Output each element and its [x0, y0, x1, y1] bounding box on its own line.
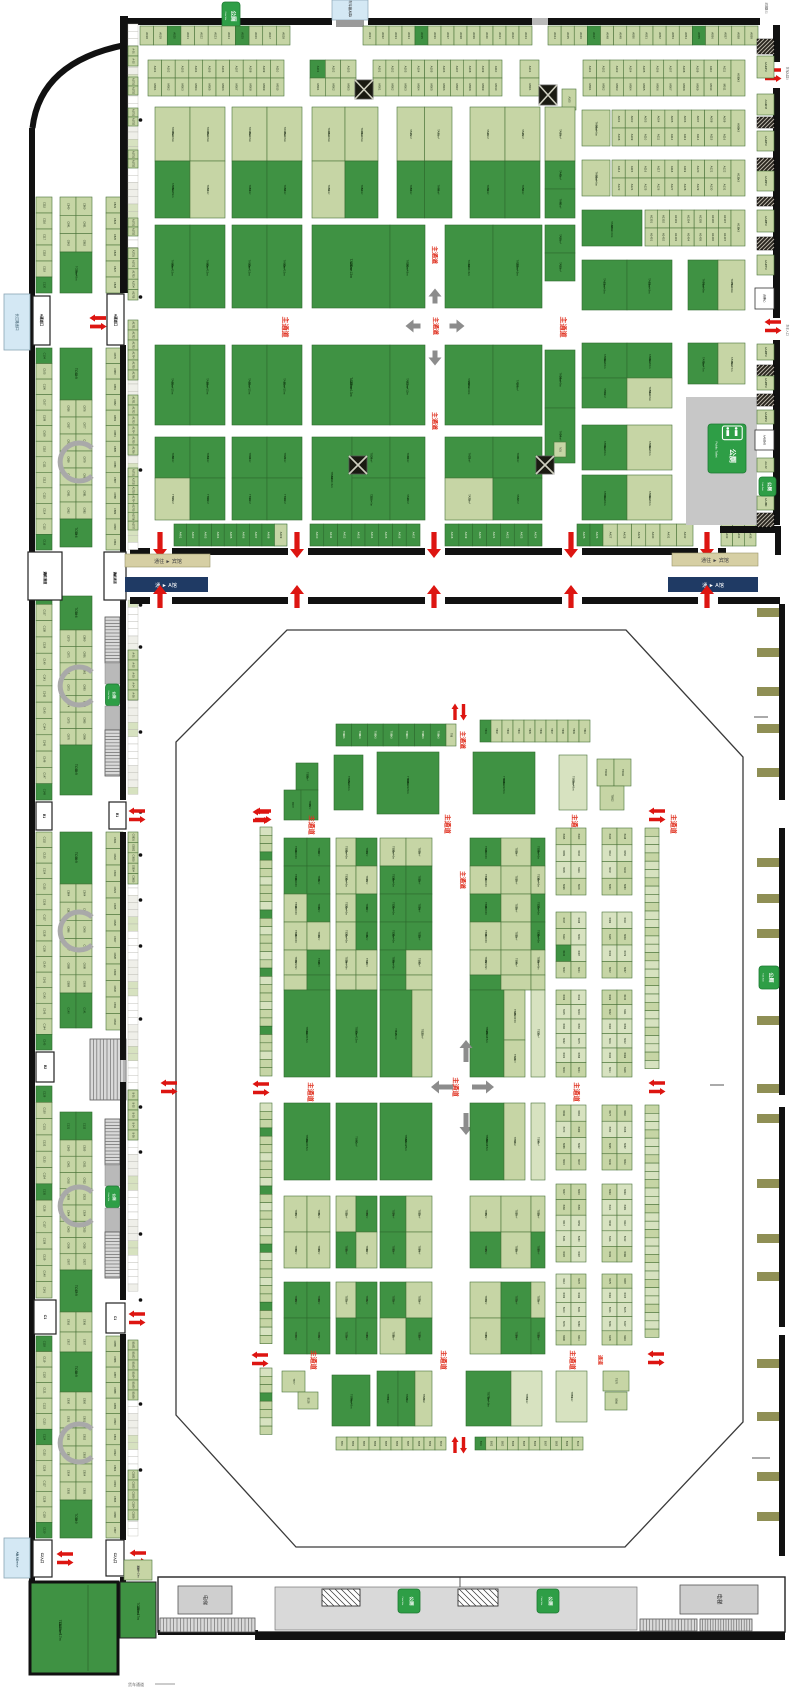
svg-text:C135: C135 — [42, 1189, 46, 1196]
svg-text:12m×9m: 12m×9m — [467, 383, 471, 395]
svg-text:B089: B089 — [577, 1127, 580, 1133]
svg-text:6×3: 6×3 — [736, 227, 740, 232]
svg-text:6m×6m: 6m×6m — [484, 879, 487, 887]
svg-text:B087: B087 — [577, 950, 580, 956]
svg-text:C133: C133 — [42, 1156, 46, 1163]
svg-text:C825: C825 — [113, 234, 117, 241]
svg-text:36m²: 36m² — [365, 935, 368, 941]
svg-text:6m×15m: 6m×15m — [485, 1139, 489, 1151]
svg-text:C904: C904 — [66, 1210, 70, 1217]
svg-text:B045: B045 — [623, 1307, 626, 1313]
svg-text:M002: M002 — [331, 84, 335, 91]
svg-text:B017: B017 — [562, 917, 565, 923]
svg-text:36m²: 36m² — [514, 1213, 517, 1219]
svg-text:3.7M: 3.7M — [764, 140, 768, 146]
svg-text:36m²: 36m² — [484, 1249, 487, 1255]
svg-text:C106: C106 — [42, 384, 46, 391]
svg-text:A038: A038 — [459, 32, 463, 39]
svg-text:A1306: A1306 — [711, 215, 715, 224]
svg-text:B033: B033 — [608, 1307, 611, 1313]
svg-text:C927: C927 — [82, 1259, 86, 1266]
svg-text:A034: A034 — [407, 32, 411, 39]
svg-text:M003: M003 — [347, 84, 351, 91]
svg-text:C884: C884 — [66, 890, 70, 897]
svg-text:C902: C902 — [66, 1178, 70, 1185]
svg-text:T806: T806 — [539, 728, 542, 734]
svg-text:54m²: 54m² — [248, 188, 252, 194]
svg-text:C140: C140 — [42, 1270, 46, 1277]
svg-text:A1702: A1702 — [131, 118, 134, 126]
svg-text:C896: C896 — [113, 1512, 117, 1519]
svg-text:C144: C144 — [42, 724, 46, 731]
svg-text:C111: C111 — [42, 462, 46, 468]
svg-text:36m²: 36m² — [294, 1299, 297, 1305]
svg-text:C124: C124 — [42, 1434, 46, 1441]
svg-text:B049: B049 — [608, 1251, 611, 1257]
svg-text:6m×6m: 6m×6m — [294, 851, 297, 859]
svg-text:B033: B033 — [608, 1052, 611, 1058]
svg-text:72m²: 72m² — [516, 497, 520, 503]
svg-text:C876: C876 — [82, 405, 86, 412]
svg-text:A131: A131 — [723, 184, 727, 191]
svg-text:6m×6m: 6m×6m — [206, 133, 210, 143]
svg-text:主通道: 主通道 — [430, 412, 438, 430]
svg-text:A126: A126 — [657, 184, 661, 191]
svg-text:M001: M001 — [378, 84, 382, 91]
svg-text:公厕: 公厕 — [547, 1597, 554, 1607]
svg-text:5m×9m: 5m×9m — [730, 284, 734, 294]
svg-text:C118: C118 — [42, 250, 46, 257]
svg-text:A1705: A1705 — [131, 437, 134, 445]
svg-text:T803: T803 — [506, 728, 509, 734]
svg-text:A108: A108 — [468, 66, 472, 73]
svg-text:A054: A054 — [684, 32, 688, 39]
svg-text:6m×6m: 6m×6m — [344, 851, 347, 859]
svg-text:13m×6m: 13m×6m — [610, 226, 614, 238]
svg-text:6m×15m: 6m×15m — [171, 264, 175, 276]
svg-text:C952: C952 — [82, 1434, 86, 1441]
svg-text:C107: C107 — [42, 399, 46, 406]
svg-text:36m²: 36m² — [248, 456, 252, 462]
svg-text:C897: C897 — [113, 1527, 117, 1534]
svg-text:A102: A102 — [391, 66, 395, 73]
svg-text:3.7M: 3.7M — [764, 351, 768, 357]
svg-text:C890: C890 — [113, 524, 117, 531]
svg-text:A101: A101 — [528, 66, 532, 73]
svg-text:C148: C148 — [42, 789, 46, 796]
svg-text:C857: C857 — [66, 422, 70, 429]
svg-text:B007: B007 — [577, 1159, 580, 1165]
svg-text:C135: C135 — [42, 883, 46, 890]
svg-text:6m×15m: 6m×15m — [355, 1031, 359, 1043]
svg-text:5m×7m: 5m×7m — [730, 362, 734, 372]
svg-text:B022: B022 — [562, 1251, 565, 1257]
svg-text:B044: B044 — [577, 1335, 580, 1341]
svg-text:TB910: TB910 — [604, 769, 607, 777]
svg-text:B062: B062 — [577, 1143, 580, 1149]
svg-text:6m×6m: 6m×6m — [248, 133, 252, 143]
svg-text:C1802: C1802 — [131, 1481, 134, 1489]
svg-text:A115: A115 — [709, 134, 713, 141]
svg-text:B905: B905 — [522, 1441, 524, 1447]
svg-text:3.7M: 3.7M — [764, 264, 768, 270]
svg-text:C823: C823 — [113, 202, 117, 209]
svg-text:A040: A040 — [485, 32, 489, 39]
svg-text:B901: B901 — [479, 1441, 481, 1447]
svg-text:C132: C132 — [82, 1123, 86, 1130]
svg-text:A101: A101 — [316, 66, 320, 73]
svg-text:6m×6m: 6m×6m — [391, 961, 394, 969]
svg-text:A105: A105 — [207, 66, 211, 73]
svg-text:B1: B1 — [42, 814, 46, 818]
svg-text:B038: B038 — [608, 1220, 611, 1226]
svg-text:B076: B076 — [623, 950, 626, 956]
svg-text:B089: B089 — [577, 1321, 580, 1327]
svg-text:B009: B009 — [562, 1293, 565, 1299]
svg-text:B075: B075 — [608, 1278, 611, 1284]
svg-text:21m×6m: 21m×6m — [369, 495, 373, 507]
svg-text:6m×7m: 6m×7m — [701, 362, 705, 372]
svg-text:A-03: A-03 — [131, 672, 134, 678]
svg-text:C885: C885 — [113, 446, 117, 453]
svg-text:B100: B100 — [562, 1307, 565, 1313]
svg-text:C923: C923 — [82, 1194, 86, 1201]
svg-text:A通道口: A通道口 — [114, 314, 119, 327]
svg-text:39m²: 39m² — [558, 132, 562, 138]
svg-text:A401: A401 — [179, 532, 183, 539]
svg-text:36m²: 36m² — [317, 961, 320, 967]
svg-text:A1303: A1303 — [674, 215, 678, 224]
svg-text:36m²: 36m² — [365, 1213, 368, 1219]
svg-text:A110: A110 — [494, 66, 498, 73]
svg-text:B904: B904 — [511, 1441, 513, 1447]
svg-text:54m²: 54m² — [486, 188, 490, 194]
svg-text:C126: C126 — [42, 1465, 46, 1472]
svg-text:A1701: A1701 — [131, 151, 134, 159]
svg-text:A024: A024 — [227, 32, 231, 39]
svg-text:36m²: 36m² — [365, 961, 368, 967]
svg-text:A1404: A1404 — [686, 233, 690, 242]
svg-text:C147: C147 — [42, 772, 46, 779]
svg-text:A127: A127 — [670, 184, 674, 191]
svg-text:C109: C109 — [42, 430, 46, 437]
svg-text:C881: C881 — [113, 384, 117, 391]
svg-text:C1805: C1805 — [131, 1511, 134, 1519]
svg-text:C825: C825 — [113, 903, 117, 910]
svg-text:C826: C826 — [113, 250, 117, 257]
svg-text:B060: B060 — [577, 834, 580, 840]
svg-text:C887: C887 — [113, 1372, 117, 1379]
svg-text:A101: A101 — [588, 66, 592, 73]
svg-text:A1703: A1703 — [131, 342, 134, 350]
svg-text:A418: A418 — [450, 532, 454, 539]
svg-text:3.7M3: 3.7M3 — [762, 438, 766, 446]
svg-text:C145: C145 — [42, 740, 46, 747]
svg-text:B089: B089 — [562, 850, 565, 856]
svg-text:A419: A419 — [464, 532, 468, 539]
svg-text:B090: B090 — [562, 1023, 565, 1029]
svg-text:C127: C127 — [42, 1481, 46, 1488]
svg-text:6×9: 6×9 — [74, 857, 78, 863]
svg-text:B805: B805 — [384, 1441, 386, 1447]
svg-text:A055: A055 — [697, 32, 701, 39]
svg-text:6m×15m: 6m×15m — [283, 383, 287, 395]
svg-text:B080: B080 — [623, 884, 626, 890]
svg-text:A1705: A1705 — [131, 362, 134, 370]
svg-text:A416: A416 — [398, 532, 402, 539]
svg-text:B054: B054 — [577, 1023, 580, 1029]
svg-text:A107: A107 — [235, 66, 239, 73]
svg-text:A019: A019 — [159, 32, 163, 39]
svg-text:C827: C827 — [113, 936, 117, 943]
svg-text:B112: B112 — [562, 1278, 565, 1284]
svg-text:A110: A110 — [643, 134, 647, 141]
svg-text:C861: C861 — [82, 221, 86, 228]
svg-text:A1701: A1701 — [131, 78, 134, 86]
svg-text:3.7M: 3.7M — [764, 66, 768, 72]
svg-text:A428: A428 — [623, 532, 627, 539]
svg-text:54m²: 54m² — [327, 188, 331, 194]
svg-text:C930: C930 — [66, 1398, 70, 1405]
svg-text:6×6: 6×6 — [74, 612, 78, 618]
svg-text:C139: C139 — [42, 642, 46, 649]
svg-text:A114: A114 — [617, 166, 621, 173]
svg-text:A007: A007 — [696, 116, 700, 123]
svg-text:C861: C861 — [66, 490, 70, 497]
svg-text:B045: B045 — [623, 1293, 626, 1299]
svg-text:6m×6m: 6m×6m — [344, 879, 347, 887]
svg-text:6m×6m: 6m×6m — [536, 935, 539, 943]
svg-text:135m²: 135m² — [394, 1031, 398, 1040]
svg-text:A1704: A1704 — [131, 427, 134, 435]
svg-text:A104: A104 — [628, 66, 632, 73]
svg-text:C889: C889 — [66, 981, 70, 988]
svg-text:TB912: TB912 — [610, 794, 613, 802]
svg-text:A049: A049 — [618, 32, 622, 39]
svg-text:54m²: 54m² — [386, 1397, 390, 1403]
svg-text:C909: C909 — [82, 981, 86, 988]
svg-text:45m²: 45m² — [558, 173, 562, 179]
svg-text:C893: C893 — [82, 684, 86, 691]
svg-text:B115: B115 — [608, 934, 611, 940]
svg-text:M008: M008 — [248, 84, 252, 91]
svg-text:主通道: 主通道 — [281, 317, 290, 338]
svg-text:54m²: 54m² — [558, 237, 562, 243]
svg-text:36m²: 36m² — [283, 456, 287, 462]
svg-text:M009: M009 — [696, 84, 700, 91]
svg-text:C1804: C1804 — [131, 1501, 134, 1509]
svg-text:主通道: 主通道 — [669, 814, 678, 834]
svg-text:A411: A411 — [329, 532, 333, 539]
svg-text:B003: B003 — [608, 950, 611, 956]
svg-text:C884: C884 — [113, 430, 117, 437]
svg-text:B060: B060 — [608, 1023, 611, 1029]
svg-text:A1302: A1302 — [662, 215, 666, 224]
svg-text:B026: B026 — [577, 934, 580, 940]
svg-text:A128: A128 — [683, 184, 687, 191]
svg-text:M002: M002 — [167, 84, 171, 91]
svg-text:3.7M: 3.7M — [764, 416, 768, 422]
svg-text:A425: A425 — [582, 532, 586, 539]
svg-text:B112: B112 — [562, 934, 565, 940]
svg-text:N01: N01 — [558, 447, 561, 452]
svg-text:T802: T802 — [495, 728, 498, 734]
svg-text:公厕: 公厕 — [766, 482, 773, 491]
svg-text:C880: C880 — [113, 368, 117, 375]
svg-text:B063: B063 — [608, 1189, 611, 1195]
svg-text:36m²: 36m² — [417, 1249, 420, 1255]
svg-text:主通道: 主通道 — [443, 814, 452, 834]
svg-text:6m×6m: 6m×6m — [484, 935, 487, 943]
svg-text:A108: A108 — [248, 66, 252, 73]
svg-text:B024: B024 — [577, 1067, 580, 1073]
svg-text:C831: C831 — [113, 1002, 117, 1009]
svg-text:6×3: 6×3 — [405, 734, 408, 739]
svg-text:B027: B027 — [562, 1189, 565, 1195]
svg-text:M007: M007 — [669, 84, 673, 91]
svg-text:B105: B105 — [608, 1335, 611, 1341]
svg-text:M004: M004 — [628, 84, 632, 91]
svg-text:A109: A109 — [262, 66, 266, 73]
svg-text:C954: C954 — [82, 1470, 86, 1477]
svg-text:11m×12m: 11m×12m — [406, 382, 410, 396]
svg-text:M004: M004 — [416, 84, 420, 91]
svg-text:B908: B908 — [554, 1441, 556, 1447]
svg-text:36m²: 36m² — [317, 879, 320, 885]
svg-text:主通道: 主通道 — [572, 1082, 581, 1102]
svg-text:B064: B064 — [623, 1159, 626, 1165]
svg-text:B-02: B-02 — [131, 1102, 134, 1108]
svg-text:C821: C821 — [113, 837, 117, 844]
svg-text:6m×25m: 6m×25m — [404, 1139, 408, 1151]
svg-text:B032: B032 — [608, 834, 611, 840]
svg-text:C0805: C0805 — [131, 875, 134, 883]
svg-text:TB70: TB70 — [614, 1378, 617, 1384]
svg-text:A113: A113 — [683, 134, 687, 141]
svg-text:B119: B119 — [623, 1335, 626, 1341]
svg-text:A1405: A1405 — [699, 233, 703, 242]
svg-text:C841: C841 — [66, 221, 70, 228]
svg-text:B2: B2 — [43, 1065, 47, 1069]
svg-text:C862: C862 — [66, 507, 70, 514]
svg-text:C870: C870 — [66, 635, 70, 642]
svg-text:A422: A422 — [506, 532, 510, 539]
svg-text:A110: A110 — [275, 66, 279, 73]
svg-text:6m×6m: 6m×6m — [360, 133, 364, 143]
svg-text:9m×6m: 9m×6m — [648, 446, 652, 456]
svg-text:B903: B903 — [500, 1441, 502, 1447]
svg-text:A1707: A1707 — [131, 522, 134, 530]
svg-text:A1702: A1702 — [131, 228, 134, 236]
svg-text:C842: C842 — [66, 240, 70, 247]
svg-text:C116: C116 — [42, 539, 46, 546]
svg-text:C134: C134 — [42, 1173, 46, 1180]
svg-text:C906: C906 — [82, 926, 86, 933]
svg-text:C118: C118 — [42, 1341, 46, 1348]
svg-text:6×9: 6×9 — [74, 1518, 78, 1524]
svg-text:C0803: C0803 — [131, 854, 134, 862]
svg-text:A106: A106 — [221, 66, 225, 73]
svg-text:A404: A404 — [216, 532, 220, 539]
svg-text:13m×13m: 13m×13m — [349, 381, 353, 396]
svg-text:36m²: 36m² — [484, 1335, 487, 1341]
svg-text:B066: B066 — [623, 1052, 626, 1058]
svg-text:B089: B089 — [608, 917, 611, 923]
svg-text:C823: C823 — [113, 870, 117, 877]
svg-text:M006: M006 — [655, 84, 659, 91]
svg-text:C890: C890 — [113, 1418, 117, 1425]
svg-text:36m²: 36m² — [317, 851, 320, 857]
svg-text:A-02: A-02 — [131, 662, 134, 668]
svg-text:6×6: 6×6 — [74, 532, 78, 538]
svg-text:B050: B050 — [623, 850, 626, 856]
svg-text:C901: C901 — [66, 1161, 70, 1168]
svg-text:M010: M010 — [275, 84, 279, 91]
svg-text:公厕: 公厕 — [408, 1597, 415, 1606]
svg-text:M002: M002 — [601, 84, 605, 91]
svg-text:C146: C146 — [42, 756, 46, 763]
svg-text:Public Toilet: Public Toilet — [715, 441, 719, 457]
svg-text:C935: C935 — [66, 1488, 70, 1495]
svg-text:A028: A028 — [281, 32, 285, 39]
svg-text:6×3: 6×3 — [437, 734, 440, 739]
svg-text:C829: C829 — [113, 969, 117, 976]
svg-text:6m×6m: 6m×6m — [294, 879, 297, 887]
svg-text:C104: C104 — [42, 353, 46, 360]
svg-text:B081: B081 — [577, 1110, 580, 1116]
svg-text:C908: C908 — [82, 963, 86, 970]
svg-text:A057: A057 — [723, 32, 727, 39]
svg-text:36m²: 36m² — [405, 1397, 409, 1403]
svg-text:54m²: 54m² — [558, 265, 562, 271]
svg-text:36m²: 36m² — [514, 907, 517, 913]
svg-text:B807: B807 — [406, 1441, 408, 1447]
svg-text:C890: C890 — [82, 635, 86, 642]
svg-text:A108: A108 — [682, 66, 686, 73]
svg-text:C141: C141 — [42, 1287, 46, 1294]
svg-text:A1702: A1702 — [131, 332, 134, 340]
svg-text:36m²: 36m² — [283, 497, 287, 503]
svg-text:C876: C876 — [66, 734, 70, 741]
svg-text:C886: C886 — [66, 926, 70, 933]
svg-text:B012: B012 — [623, 1236, 626, 1242]
svg-text:T801: T801 — [484, 728, 487, 734]
svg-text:A1703: A1703 — [131, 487, 134, 495]
svg-text:A1705: A1705 — [131, 504, 134, 512]
svg-text:A1703: A1703 — [131, 417, 134, 425]
svg-text:36m²: 36m² — [417, 851, 420, 857]
svg-text:C926: C926 — [82, 1243, 86, 1250]
svg-text:6m×6m: 6m×6m — [536, 961, 539, 969]
svg-text:36m²: 36m² — [391, 1335, 394, 1341]
svg-text:B106: B106 — [608, 1159, 611, 1165]
svg-text:主通道: 主通道 — [458, 871, 466, 889]
svg-text:C139: C139 — [42, 946, 46, 953]
svg-text:B094: B094 — [562, 1205, 565, 1211]
svg-text:A-02: A-02 — [131, 58, 134, 64]
svg-text:T805: T805 — [528, 728, 531, 734]
svg-text:C907: C907 — [66, 1259, 70, 1266]
svg-text:B037: B037 — [291, 802, 294, 808]
svg-text:6m×6m: 6m×6m — [344, 935, 347, 943]
svg-text:B808: B808 — [417, 1441, 419, 1447]
svg-text:6m×6m: 6m×6m — [344, 961, 347, 969]
svg-text:A427: A427 — [608, 532, 612, 539]
svg-text:B1606: B1606 — [131, 1392, 134, 1400]
svg-text:A429: A429 — [637, 532, 641, 539]
svg-text:A412: A412 — [343, 532, 347, 539]
svg-text:C921: C921 — [82, 1161, 86, 1168]
